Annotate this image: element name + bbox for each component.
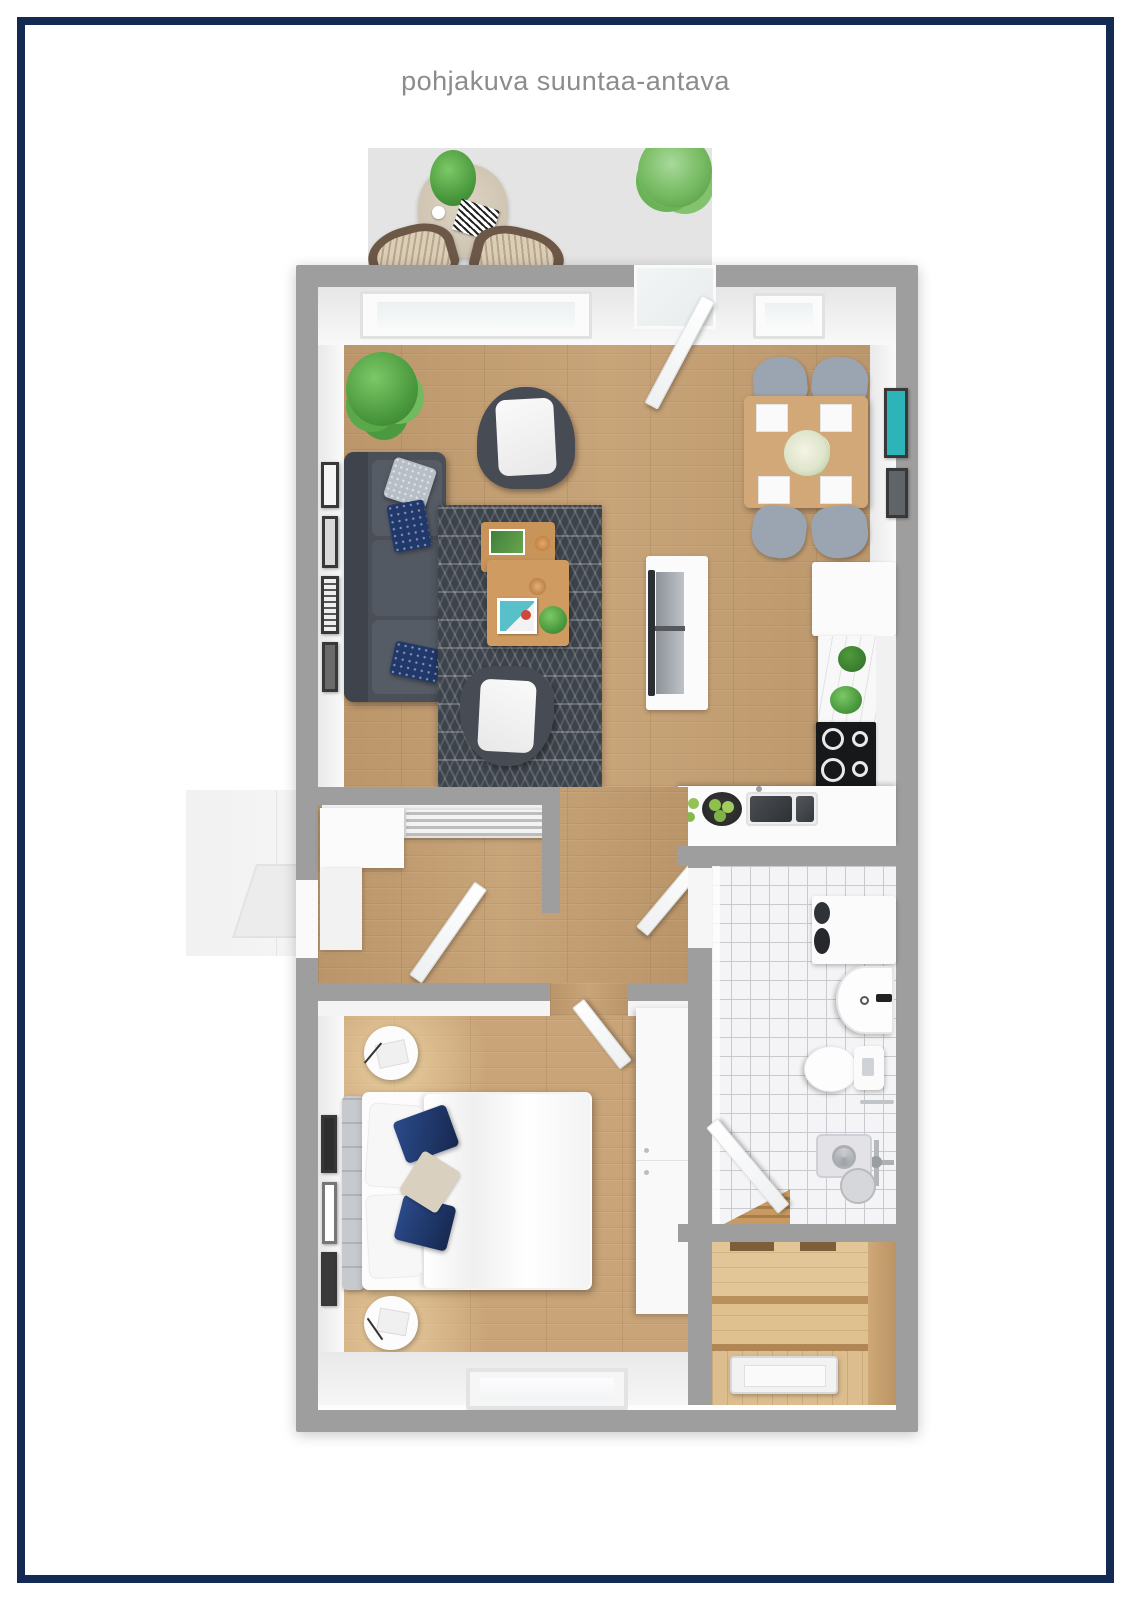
coffee-table-cup-2 <box>529 578 546 595</box>
place-setting-1 <box>756 404 788 432</box>
dining-flowers <box>784 430 830 476</box>
toilet <box>804 1044 888 1092</box>
cooktop <box>816 722 876 790</box>
tv-mount <box>655 626 685 631</box>
kitchen-herb-2 <box>830 686 862 714</box>
bathroom-doorway <box>688 868 712 948</box>
page-title: pohjakuva suuntaa-antava <box>0 66 1131 97</box>
tv-stand <box>646 556 708 710</box>
washing-machine <box>812 896 896 964</box>
terrace-bush-plant <box>638 148 712 208</box>
living-wall-frame-3 <box>321 576 339 634</box>
dining-art-teal <box>884 388 908 458</box>
bathroom-faucet <box>876 994 892 1002</box>
hall-closet <box>320 808 404 868</box>
entry-doorway <box>296 880 318 958</box>
floor-drain-swirl <box>832 1145 856 1169</box>
hall-divider-wall <box>542 787 560 913</box>
shower-stool <box>840 1168 876 1204</box>
living-wall-frame-4 <box>322 642 338 692</box>
terrace-chair-right-cushion <box>477 228 558 268</box>
hall-cabinet <box>320 868 362 950</box>
burner-4 <box>852 761 868 777</box>
kitchen-backsplash <box>876 636 896 790</box>
loose-apple-1 <box>688 798 699 809</box>
terrace-chair-left-cushion <box>373 225 452 268</box>
bedroom-wall-frame-3 <box>321 1252 337 1306</box>
bedroom-wall-frame-1 <box>321 1115 337 1173</box>
burner-2 <box>852 731 868 747</box>
towel-bar <box>860 1100 894 1104</box>
dining-window-glass <box>765 303 813 327</box>
coffee-table-magazine-dot <box>521 610 531 620</box>
hall-radiator <box>404 808 546 838</box>
coffee-table-cup-1 <box>535 536 550 551</box>
dining-window <box>753 293 825 339</box>
terrace <box>368 148 712 268</box>
nightstand-top <box>364 1026 418 1080</box>
terrace-cup <box>432 206 445 219</box>
tv-screen-edge <box>648 570 655 696</box>
burner-1 <box>822 728 844 750</box>
burner-3 <box>821 758 845 782</box>
bathroom-left-wall-face <box>712 866 720 1224</box>
sauna-vent-2 <box>800 1242 836 1251</box>
dining-table <box>744 396 868 508</box>
sink-drain <box>860 996 869 1005</box>
washer-door-2 <box>814 928 830 954</box>
bathroom-sink <box>836 966 894 1034</box>
living-window-glass <box>377 302 575 328</box>
fruit-bowl <box>702 792 742 826</box>
kitchen-herb-1 <box>838 646 866 672</box>
kitchen-tall-cabinet <box>812 562 896 636</box>
wardrobe-handle-2 <box>644 1170 649 1175</box>
nightstand-bottom <box>364 1296 418 1350</box>
living-wall-frame-2 <box>322 516 338 568</box>
bed-headboard <box>342 1096 364 1290</box>
armchair-top-cushion <box>495 398 557 477</box>
living-corner-plant <box>346 352 418 426</box>
bedroom-window <box>466 1368 628 1410</box>
coffee-table-plant <box>539 606 567 634</box>
page: pohjakuva suuntaa-antava <box>0 0 1131 1600</box>
washer-door-1 <box>814 902 830 924</box>
hall-top-wall <box>318 787 560 805</box>
sauna-drain-inner <box>744 1365 826 1387</box>
bedroom-top-wall-face-left <box>318 1001 550 1016</box>
coffee-table-magazine <box>497 598 537 634</box>
sauna-drain <box>730 1356 838 1394</box>
sofa-backrest <box>344 452 368 702</box>
armchair-top <box>477 387 575 489</box>
kitchen-sink <box>746 792 818 826</box>
sink-faucet <box>756 786 762 792</box>
sofa-cushion-2 <box>372 540 442 616</box>
bedroom-wall-frame-2 <box>322 1182 337 1244</box>
place-setting-2 <box>820 404 852 432</box>
tv-back-panel <box>656 572 684 694</box>
apple-3 <box>714 810 726 822</box>
sauna-vent-1 <box>730 1242 774 1251</box>
toilet-flush-button <box>862 1058 874 1076</box>
coffee-table-large <box>487 560 569 646</box>
wardrobe-handle-1 <box>644 1148 649 1153</box>
kitchen-peninsula <box>678 786 896 846</box>
bedroom-window-glass <box>480 1378 614 1400</box>
sofa-pillow-navy-1 <box>386 499 432 553</box>
coffee-table-book <box>489 529 525 555</box>
terrace-table-plant <box>430 150 476 206</box>
nightstand-bottom-book <box>376 1308 410 1337</box>
sauna-right-wall-face <box>868 1242 896 1405</box>
sauna-top-wall <box>678 1224 918 1242</box>
place-setting-4 <box>820 476 852 504</box>
living-window <box>360 291 592 339</box>
sink-basin-small <box>796 796 814 822</box>
dining-art-dark <box>886 468 908 518</box>
bathroom-top-wall <box>678 846 918 866</box>
living-wall-frame-1 <box>321 462 339 508</box>
toilet-bowl <box>804 1046 858 1092</box>
bedroom-top-wall <box>318 983 710 1001</box>
sink-basin-large <box>750 796 792 822</box>
armchair-bottom-cushion <box>477 679 537 754</box>
place-setting-3 <box>758 476 790 504</box>
bed <box>362 1092 592 1290</box>
